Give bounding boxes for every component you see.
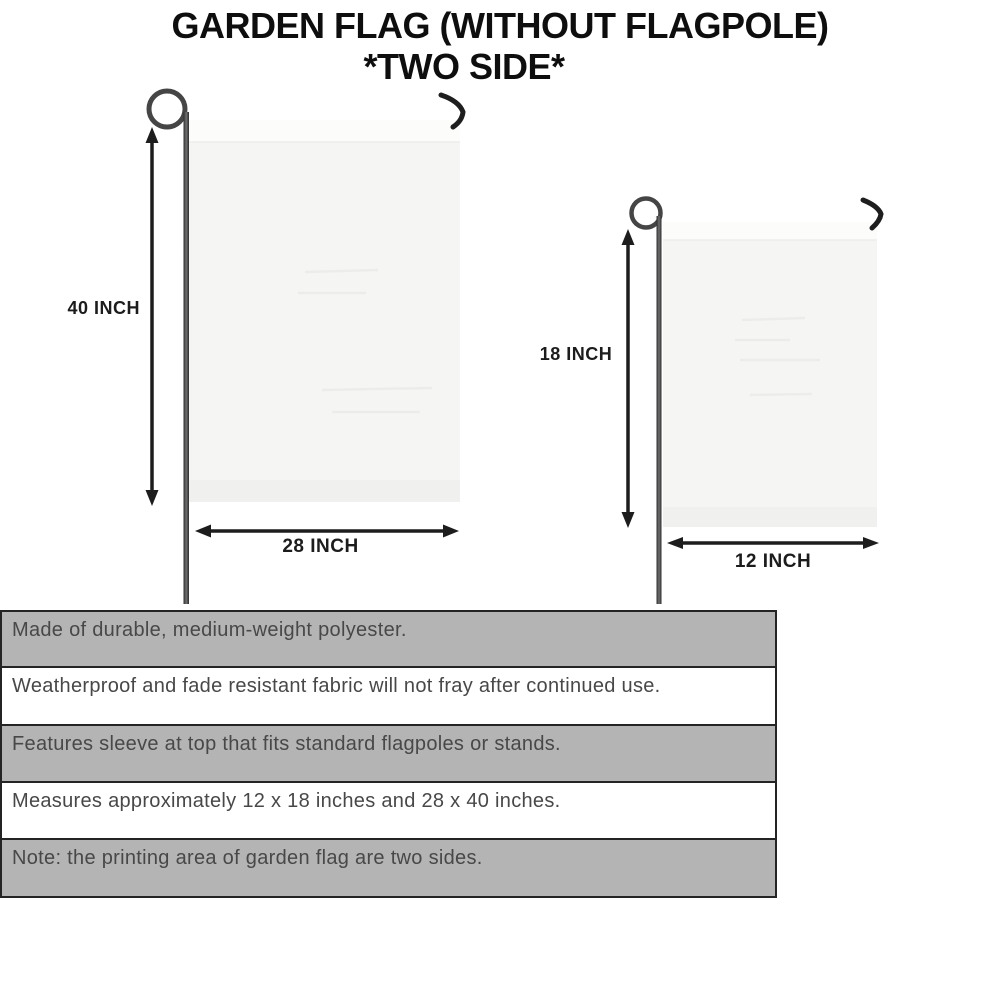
small-flag-group [622,199,882,605]
flagpole-loop-icon [632,199,661,228]
width-arrow-small [667,537,879,549]
feature-row-note: Note: the printing area of garden flag a… [2,840,775,896]
feature-row-measurements: Measures approximately 12 x 18 inches an… [2,783,775,840]
flag-large [189,120,460,502]
product-infographic: GARDEN FLAG (WITHOUT FLAGPOLE) *TWO SIDE… [0,0,1000,1000]
flag-small [663,222,877,527]
large-flag-group [146,91,464,604]
feature-row-sleeve: Features sleeve at top that fits standar… [2,726,775,783]
page-subtitle: *TWO SIDE* [0,47,964,87]
large-flag-width-label: 28 INCH [258,536,383,558]
small-flag-height-label: 18 INCH [518,344,634,365]
height-arrow-small [622,229,635,528]
large-flag-height-label: 40 INCH [40,298,140,319]
feature-list: Made of durable, medium-weight polyester… [0,610,777,898]
flagpole-large [184,112,190,604]
small-flag-width-label: 12 INCH [711,551,835,573]
page-title: GARDEN FLAG (WITHOUT FLAGPOLE) [0,6,1000,46]
flag-large-sleeve [189,120,460,142]
flag-small-bottom-band [663,507,877,527]
feature-row-weatherproof: Weatherproof and fade resistant fabric w… [2,668,775,726]
flag-small-sleeve [663,222,877,240]
flagpole-small [657,216,662,604]
flagpole-loop-icon [149,91,185,127]
title-block: GARDEN FLAG (WITHOUT FLAGPOLE) *TWO SIDE… [0,6,1000,87]
flag-large-bottom-band [189,480,460,502]
feature-row-material: Made of durable, medium-weight polyester… [2,612,775,668]
height-arrow-large [146,127,159,506]
